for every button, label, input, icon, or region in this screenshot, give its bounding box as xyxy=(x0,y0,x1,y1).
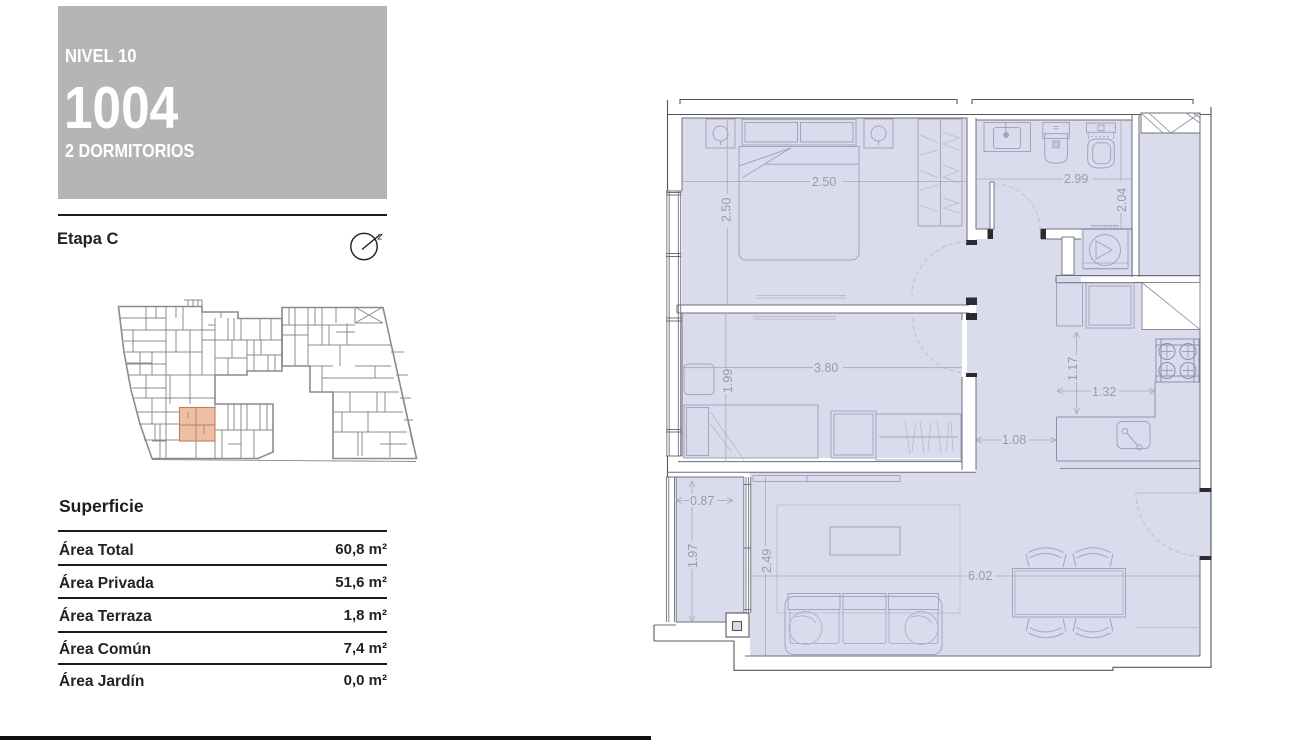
svg-text:z: z xyxy=(377,232,383,243)
svg-text:1.32: 1.32 xyxy=(1092,385,1116,399)
svg-text:1.17: 1.17 xyxy=(1066,357,1080,381)
svg-text:3.80: 3.80 xyxy=(814,361,838,375)
svg-text:1.08: 1.08 xyxy=(1002,433,1026,447)
svg-text:6.02: 6.02 xyxy=(968,569,992,583)
svg-text:2.04: 2.04 xyxy=(1115,188,1129,212)
svg-text:2.50: 2.50 xyxy=(720,198,734,222)
svg-text:2.99: 2.99 xyxy=(1064,172,1088,186)
svg-text:1.97: 1.97 xyxy=(686,544,700,568)
svg-text:2.50: 2.50 xyxy=(812,175,836,189)
svg-text:1.99: 1.99 xyxy=(721,369,735,393)
svg-text:0.87: 0.87 xyxy=(690,494,714,508)
svg-text:2.49: 2.49 xyxy=(760,549,774,573)
